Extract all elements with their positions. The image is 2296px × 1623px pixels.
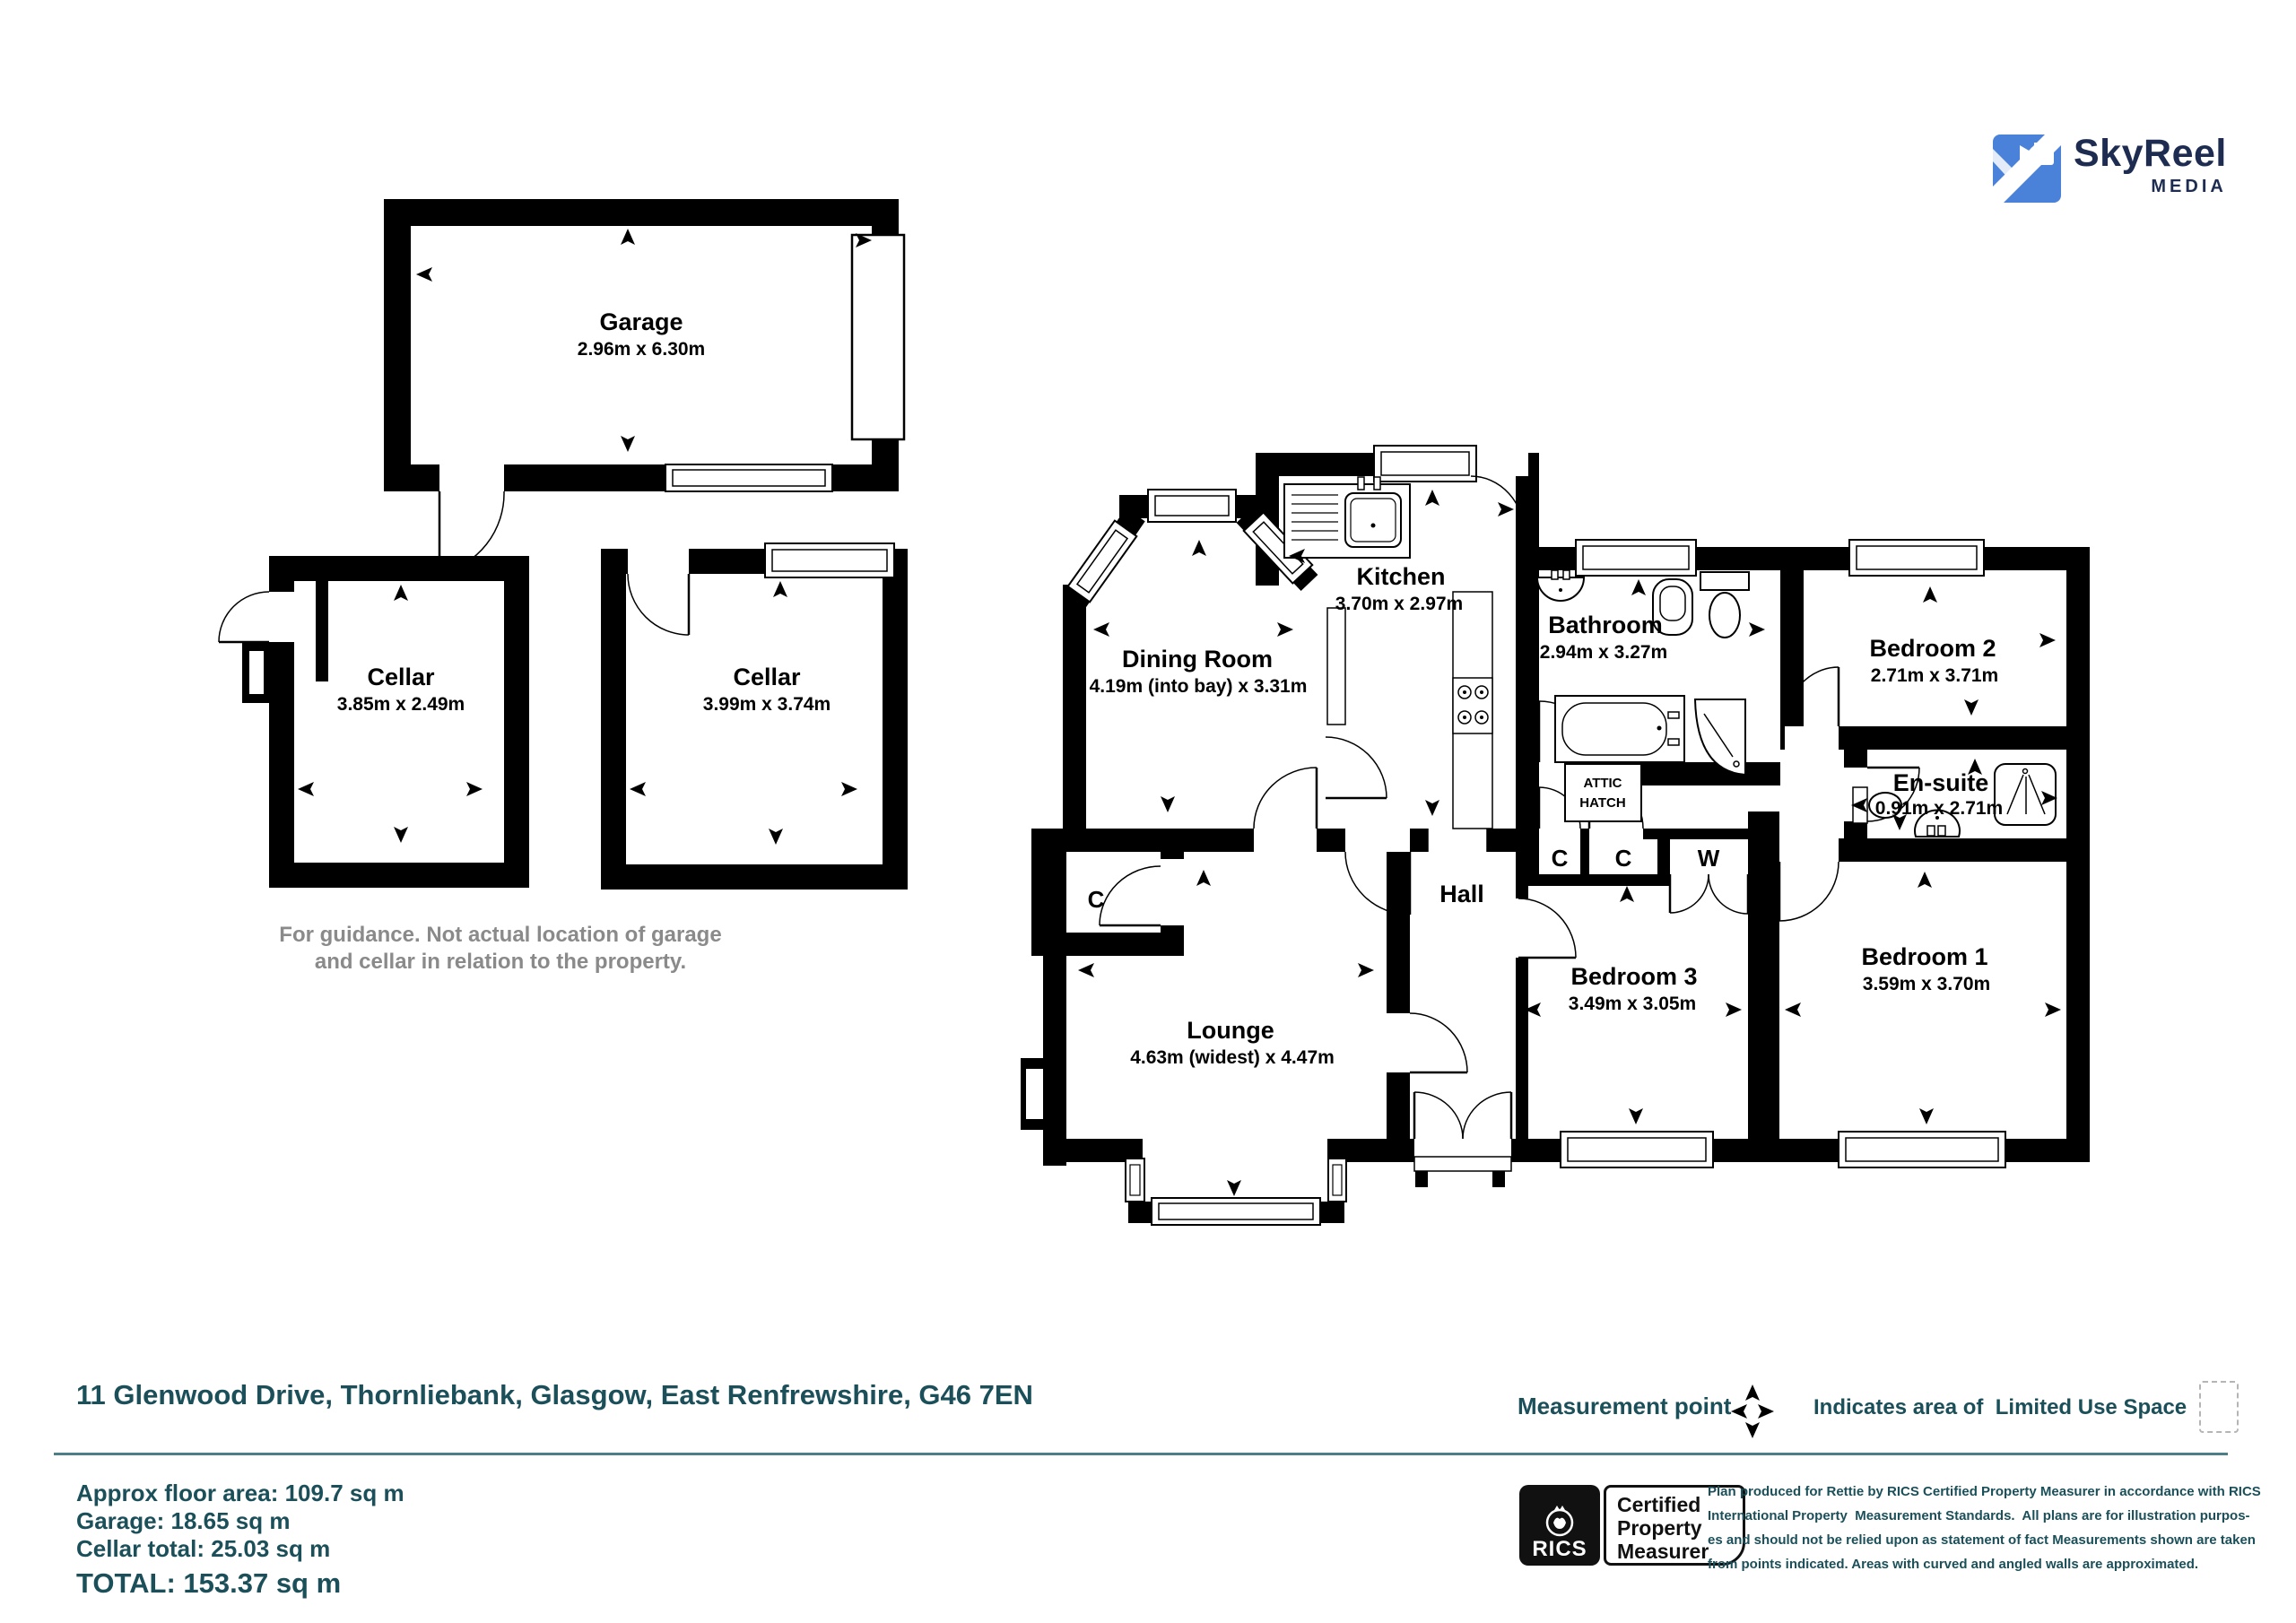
kitchen-counter: [1453, 592, 1492, 829]
rics-lion-icon: [1542, 1503, 1578, 1539]
rics-badge: RICS: [1519, 1485, 1600, 1566]
bedroom3-dims: 3.49m x 3.05m: [1569, 994, 1696, 1014]
limited-use-space-icon: [2199, 1381, 2239, 1433]
kitchen-hob: [1453, 678, 1492, 733]
wall-recess: [1327, 608, 1345, 725]
garage-label: Garage: [599, 308, 683, 335]
cellar2-room: Cellar 3.99m x 3.74m: [601, 543, 908, 890]
approx-floor-area: Approx floor area: 109.7 sq m: [76, 1480, 404, 1507]
garage-window: [665, 464, 832, 491]
total-area: TOTAL: 153.37 sq m: [76, 1567, 341, 1600]
cellar1-dims: 3.85m x 2.49m: [337, 694, 465, 715]
lounge-label: Lounge: [1187, 1017, 1274, 1044]
legend-measurement-point: Measurement point: [1518, 1393, 1731, 1420]
attic-line1: ATTIC: [1583, 776, 1622, 791]
disclaimer-line4: from points indicated. Areas with curved…: [1708, 1552, 2232, 1576]
rics-wordmark: RICS: [1532, 1539, 1587, 1560]
cellar1-room: Cellar 3.85m x 2.49m: [219, 556, 529, 888]
cellar2-label: Cellar: [733, 664, 801, 690]
bedroom2-label: Bedroom 2: [1869, 635, 1996, 662]
disclaimer-line3: es and should not be relied upon as stat…: [1708, 1528, 2232, 1552]
bedroom1-dims: 3.59m x 3.70m: [1863, 974, 1990, 994]
bedroom3-label: Bedroom 3: [1570, 963, 1697, 990]
cellar-area: Cellar total: 25.03 sq m: [76, 1535, 330, 1563]
logo-brand: SkyReel: [2074, 135, 2227, 173]
ensuite-label: En-suite: [1893, 769, 1989, 796]
kitchen-sink: [1284, 477, 1410, 558]
attic-line2: HATCH: [1579, 795, 1625, 811]
bedroom2-dims: 2.71m x 3.71m: [1871, 665, 1998, 686]
logo-sub: MEDIA: [2074, 178, 2227, 195]
bedroom1-label: Bedroom 1: [1861, 943, 1987, 970]
closet2-label: C: [1615, 845, 1632, 872]
closet1-label: C: [1552, 845, 1569, 872]
ensuite-dims: 0.91m x 2.71m: [1875, 798, 2003, 819]
garage-room: Garage 2.96m x 6.30m: [384, 199, 904, 574]
guidance-note: For guidance. Not actual location of gar…: [279, 923, 721, 974]
measurement-point-icon: [1731, 1384, 1774, 1438]
cellar1-door: [219, 592, 269, 642]
hall-label: Hall: [1439, 881, 1484, 907]
attic-hatch: ATTIC HATCH: [1565, 764, 1641, 821]
dining-label: Dining Room: [1122, 646, 1273, 673]
garage-area: Garage: 18.65 sq m: [76, 1507, 290, 1535]
disclaimer-line2: International Property Measurement Stand…: [1708, 1504, 2232, 1528]
bathroom-label: Bathroom: [1548, 612, 1663, 638]
disclaimer-line1: Plan produced for Rettie by RICS Certifi…: [1708, 1480, 2232, 1504]
divider-rule: [54, 1453, 2228, 1455]
cellar2-door: [628, 574, 689, 635]
legend-limited-use: Indicates area of Limited Use Space: [1813, 1395, 2187, 1420]
bathroom-dims: 2.94m x 3.27m: [1540, 642, 1667, 663]
cellar1-label: Cellar: [367, 664, 435, 690]
guidance-line2: and cellar in relation to the property.: [315, 950, 686, 974]
guidance-line1: For guidance. Not actual location of gar…: [279, 923, 721, 947]
skyreel-logo: SkyReel MEDIA: [1993, 135, 2227, 203]
property-address: 11 Glenwood Drive, Thornliebank, Glasgow…: [76, 1379, 1033, 1411]
garage-dims: 2.96m x 6.30m: [578, 339, 705, 360]
bathroom-bath: [1555, 696, 1684, 762]
wardrobe-label: W: [1698, 845, 1720, 872]
lounge-dims: 4.63m (widest) x 4.47m: [1130, 1047, 1335, 1068]
disclaimer-text: Plan produced for Rettie by RICS Certifi…: [1708, 1480, 2232, 1576]
bathroom-toilet: [1700, 572, 1749, 638]
skyreel-logo-icon: [1993, 135, 2061, 203]
garage-door-panel: [852, 235, 904, 439]
front-double-door: [1414, 1092, 1511, 1171]
closet-dining-label: C: [1088, 886, 1105, 913]
kitchen-dims: 3.70m x 2.97m: [1335, 594, 1463, 614]
kitchen-label: Kitchen: [1356, 563, 1445, 590]
cellar2-dims: 3.99m x 3.74m: [703, 694, 831, 715]
dining-dims: 4.19m (into bay) x 3.31m: [1090, 676, 1308, 697]
cellar2-window: [765, 543, 894, 577]
